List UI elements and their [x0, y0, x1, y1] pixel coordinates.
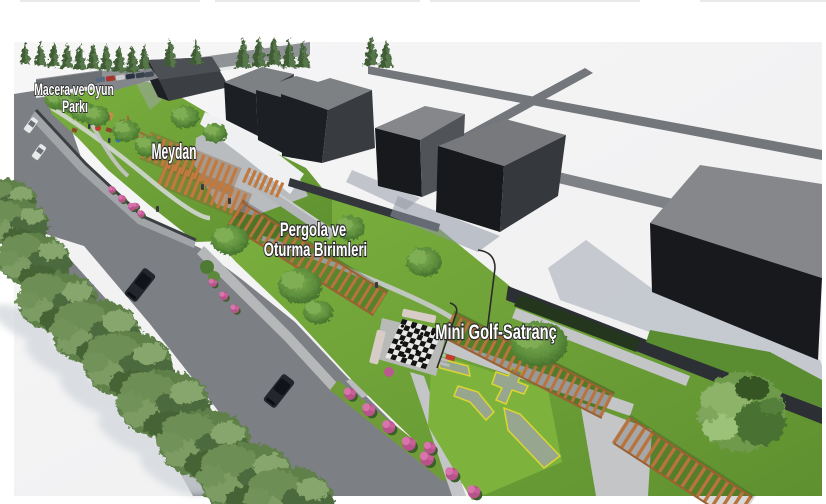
svg-text:Pergola ve: Pergola ve: [280, 220, 346, 241]
svg-text:Meydan: Meydan: [151, 139, 196, 164]
svg-text:Parkı: Parkı: [62, 97, 88, 116]
svg-text:Mini Golf-Satranç: Mini Golf-Satranç: [435, 320, 557, 343]
svg-text:Oturma Birimleri: Oturma Birimleri: [264, 240, 367, 261]
